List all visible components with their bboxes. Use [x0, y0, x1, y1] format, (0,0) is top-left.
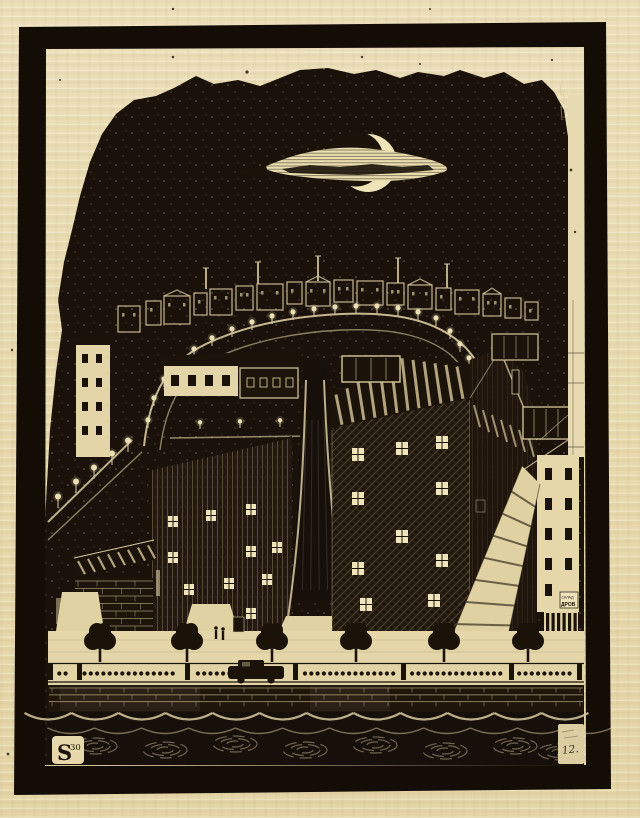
building-low-right — [240, 368, 298, 398]
plate-number: 12. — [558, 724, 584, 764]
building-sign: СКЛАД ДРОВ — [560, 592, 578, 608]
building-right-main — [330, 354, 470, 631]
balustrade — [48, 662, 584, 685]
building-left-tower — [72, 334, 114, 457]
woodcut-scene: СКЛАД ДРОВ — [0, 0, 640, 818]
building-far-right: СКЛАД ДРОВ — [537, 455, 579, 632]
print-page: СКЛАД ДРОВ — [0, 0, 640, 818]
building-left-main — [148, 436, 292, 631]
river — [25, 712, 612, 765]
building-sign-line2: ДРОВ — [561, 602, 576, 608]
monogram-year: 30 — [70, 743, 81, 753]
embankment-wall — [48, 685, 584, 712]
right-margin-strip — [566, 95, 584, 457]
artist-monogram: S 30 — [52, 736, 84, 765]
building-sign-line1: СКЛАД — [562, 596, 575, 600]
kiosk — [233, 617, 244, 632]
plate-number-text: 12. — [561, 743, 579, 757]
